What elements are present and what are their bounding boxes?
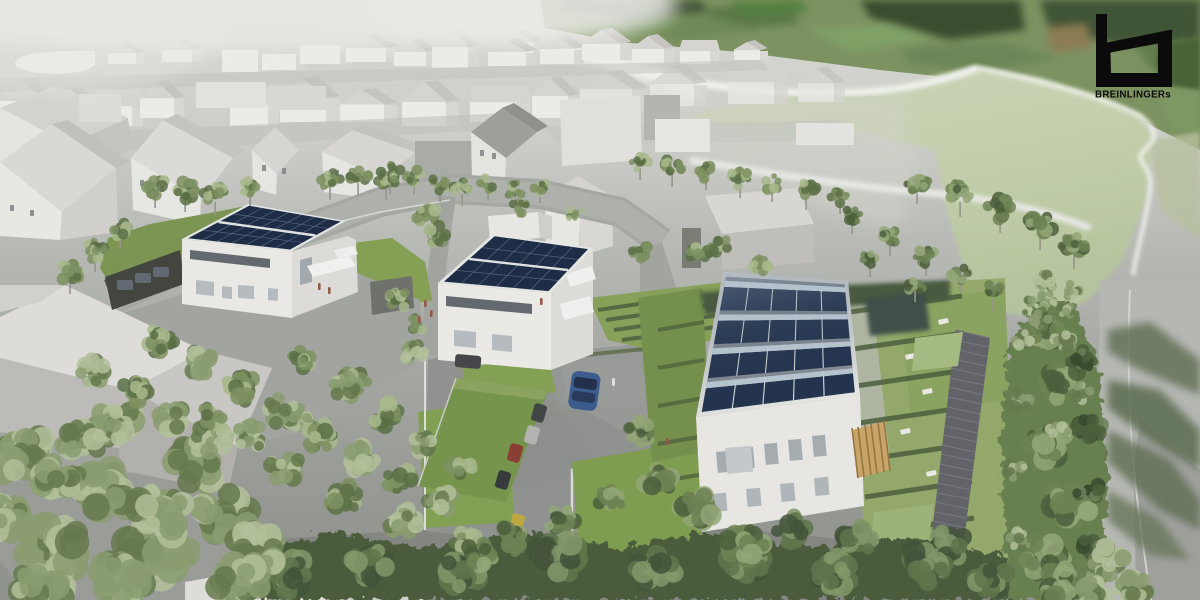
svg-text:BREINLINGERs: BREINLINGERs: [1095, 90, 1171, 101]
